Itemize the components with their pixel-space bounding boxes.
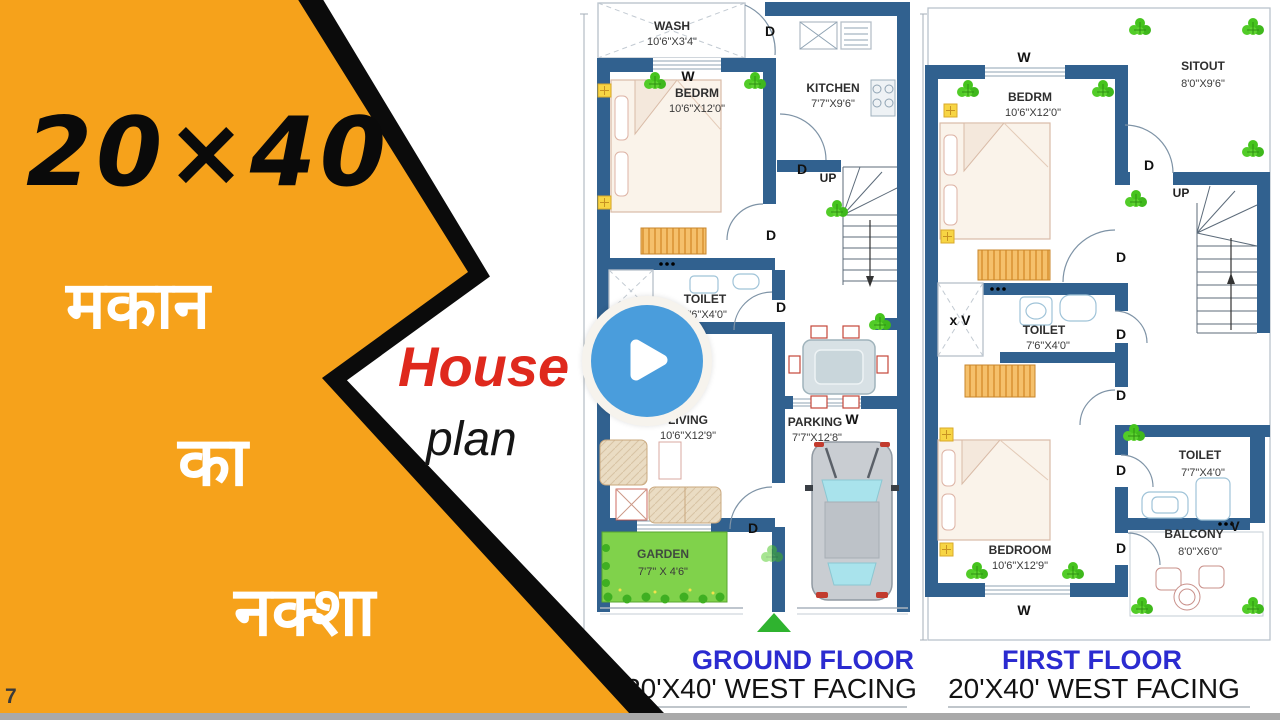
room-name: BALCONY	[1164, 527, 1223, 541]
room-dim: 10'6"X12'9"	[992, 560, 1048, 572]
room-name: KITCHEN	[806, 81, 859, 95]
room-dim: 10'6"X12'9"	[660, 430, 716, 442]
window-label: W	[1017, 49, 1031, 65]
door-label: D	[1116, 249, 1126, 265]
room-dim: 7'7"X9'6"	[811, 98, 855, 110]
window-label: W	[1017, 602, 1031, 618]
bed	[938, 440, 1050, 540]
hindi-word-naksha: नक्शा	[234, 562, 375, 655]
room-name: BEDRM	[1008, 90, 1052, 104]
room-name: TOILET	[1179, 448, 1222, 462]
wardrobe	[978, 250, 1050, 280]
plot-boundary	[600, 608, 908, 632]
room-dim: 10'6"X12'0"	[1005, 107, 1061, 119]
door-label: D	[1116, 462, 1126, 478]
vent-shaft: x V	[938, 283, 983, 356]
room-dim: 8'0"X6'0"	[1178, 546, 1222, 558]
up-label: UP	[820, 171, 837, 185]
ground-dimension-line	[580, 14, 588, 646]
room-dim: 7'6"X4'0"	[1026, 340, 1070, 352]
room-name: GARDEN	[637, 547, 689, 561]
room-name: SITOUT	[1181, 59, 1225, 73]
plan-title: plan	[426, 412, 517, 467]
door-label: D	[1144, 157, 1154, 173]
house-title: House	[398, 334, 569, 399]
wardrobe	[965, 365, 1035, 397]
vent-label: V	[1230, 518, 1240, 534]
room-name: PARKING	[788, 415, 842, 429]
door-label: D	[766, 227, 776, 243]
play-button[interactable]	[582, 296, 712, 426]
door-label: D	[1116, 387, 1126, 403]
garden-area: GARDEN 7'7" X 4'6"	[602, 532, 727, 604]
room-dim: 7'7"X4'0"	[1181, 467, 1225, 479]
door-label: D	[765, 23, 775, 39]
room-dim: 7'7" X 4'6"	[638, 566, 688, 578]
first-floor-subcaption: 20'X40' WEST FACING	[948, 673, 1240, 704]
dining-table	[789, 326, 888, 408]
room-name: WASH	[654, 19, 690, 33]
bottom-border-bar	[0, 713, 1280, 720]
vent-shaft-label: x V	[949, 312, 971, 328]
sofa-set	[600, 440, 721, 523]
video-thumbnail: WASH 10'6"X3'4"	[0, 0, 1280, 720]
room-dim: 10'6"X12'0"	[669, 103, 725, 115]
room-name: BEDRM	[675, 86, 719, 100]
wardrobe	[641, 228, 706, 254]
bed	[940, 123, 1050, 239]
first-floor-plan: SITOUT 8'0"X9'6" BEDRM 10'6"X12'	[920, 0, 1280, 720]
hindi-word-ka: का	[178, 412, 248, 505]
ground-floor-caption: GROUND FLOOR	[692, 645, 914, 675]
room-name: BEDROOM	[989, 543, 1052, 557]
window-label: W	[845, 411, 859, 427]
door-label: D	[776, 299, 786, 315]
room-name: TOILET	[684, 292, 727, 306]
entry-arrow-icon	[757, 613, 791, 632]
room-dim: 7'7"X12'8"	[792, 432, 842, 444]
ground-floor-subcaption: 20'X40' WEST FACING	[625, 673, 917, 704]
first-floor-caption: FIRST FLOOR	[1002, 645, 1182, 675]
corner-watermark: 7	[5, 685, 17, 709]
window-label: W	[681, 68, 695, 84]
room-dim: 10'6"X3'4"	[647, 36, 697, 48]
room-name: TOILET	[1023, 323, 1066, 337]
room-wash: WASH 10'6"X3'4"	[598, 3, 775, 58]
door-label: D	[1116, 326, 1126, 342]
door-label: D	[797, 161, 807, 177]
play-icon	[624, 332, 674, 388]
car	[805, 442, 899, 600]
hindi-word-makaan: मकान	[66, 258, 210, 348]
door-label: D	[1116, 540, 1126, 556]
door-label: D	[748, 520, 758, 536]
up-label: UP	[1173, 186, 1190, 200]
size-title: 20×40	[26, 98, 390, 208]
staircase	[843, 167, 897, 287]
room-dim: 8'0"X9'6"	[1181, 78, 1225, 90]
